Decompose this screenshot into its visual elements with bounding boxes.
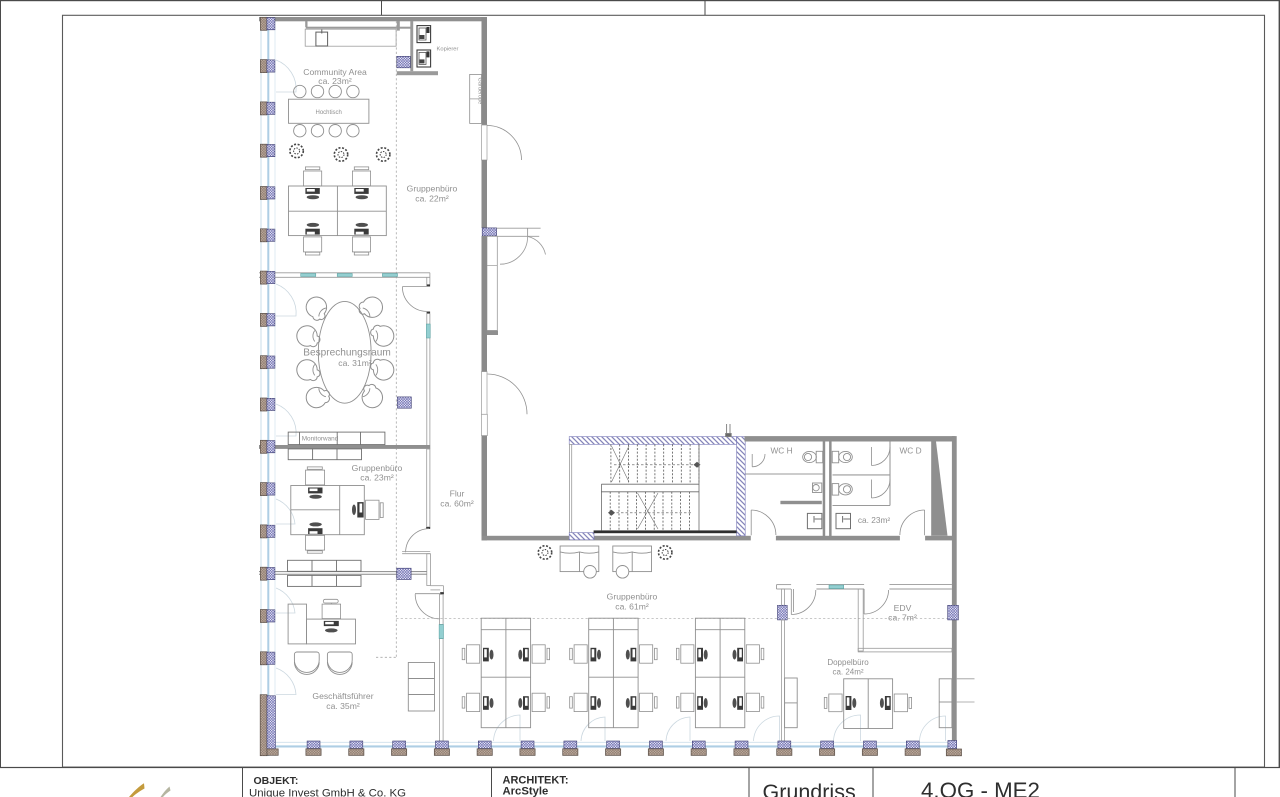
svg-text:EDV: EDV <box>894 603 912 613</box>
svg-text:ca. 7m²: ca. 7m² <box>888 613 917 623</box>
svg-text:ca. 23m²: ca. 23m² <box>858 515 891 525</box>
svg-text:Geschäftsführer: Geschäftsführer <box>312 691 373 701</box>
svg-text:ca. 22m²: ca. 22m² <box>415 194 449 204</box>
svg-text:ca. 23m²: ca. 23m² <box>360 473 394 483</box>
svg-text:Gruppenbüro: Gruppenbüro <box>352 463 403 473</box>
svg-text:Unique Invest GmbH & Co. KG: Unique Invest GmbH & Co. KG <box>249 787 406 797</box>
svg-text:Gruppenbüro: Gruppenbüro <box>607 592 658 602</box>
svg-text:Monitorwand: Monitorwand <box>302 436 339 443</box>
svg-text:Flur: Flur <box>450 489 465 499</box>
svg-text:ArcStyle: ArcStyle <box>503 786 549 797</box>
svg-text:ARCHITEKT:: ARCHITEKT: <box>503 774 569 786</box>
svg-text:Doppelbüro: Doppelbüro <box>827 658 869 667</box>
svg-text:Gruppenbüro: Gruppenbüro <box>407 184 458 194</box>
svg-text:ca. 31m²: ca. 31m² <box>338 358 372 368</box>
svg-text:ca. 61m²: ca. 61m² <box>615 602 649 612</box>
svg-text:Garderobe: Garderobe <box>476 78 482 105</box>
svg-text:WC D: WC D <box>899 446 921 456</box>
svg-text:ca. 35m²: ca. 35m² <box>326 701 360 711</box>
svg-text:Grundriss: Grundriss <box>763 780 856 797</box>
svg-text:WC H: WC H <box>770 446 792 456</box>
svg-text:Hochtisch: Hochtisch <box>316 110 342 116</box>
svg-text:ca. 23m²: ca. 23m² <box>318 76 352 86</box>
svg-text:Kopierer: Kopierer <box>437 47 459 53</box>
svg-text:ca. 24m²: ca. 24m² <box>832 668 863 677</box>
svg-text:ca. 60m²: ca. 60m² <box>440 499 474 509</box>
svg-text:4.OG - ME2: 4.OG - ME2 <box>921 778 1040 797</box>
svg-text:OBJEKT:: OBJEKT: <box>254 775 299 787</box>
